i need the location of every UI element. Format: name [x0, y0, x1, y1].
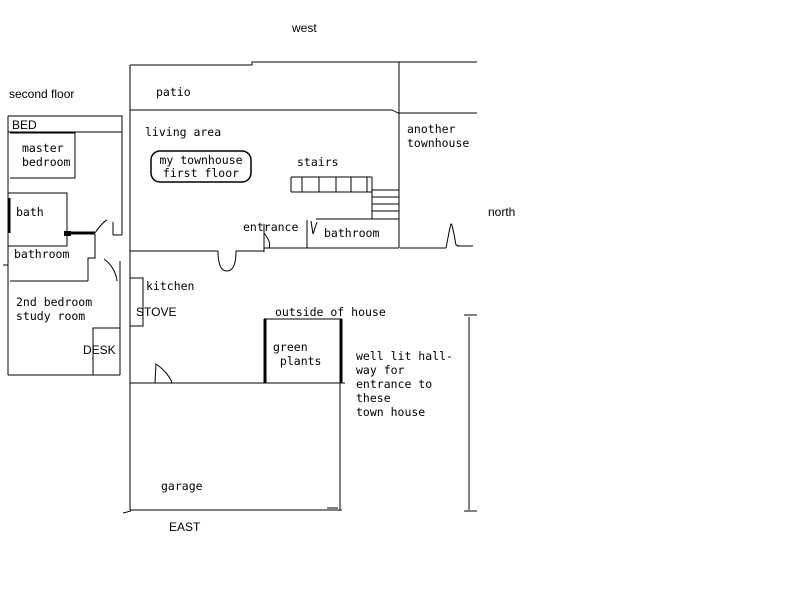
garage-corner-stroke: [123, 511, 131, 513]
kitchen-lower-door-swing: [155, 364, 172, 383]
floor-plan-canvas: west north EAST second floor BED master …: [0, 0, 800, 600]
neighbor-door-swing: [446, 224, 459, 248]
garage-walls: [123, 383, 345, 513]
stairs-upper-run: [291, 177, 372, 192]
stairs-label: stairs: [297, 155, 339, 169]
floor-plan-drawing: [0, 0, 800, 600]
entrance-door-swing: [264, 233, 270, 248]
bathroom-1f-label: bathroom: [324, 226, 379, 240]
east-label: EAST: [169, 520, 200, 534]
bath-label: bath: [16, 205, 44, 219]
west-label: west: [292, 21, 317, 35]
kitchen-door-swing: [218, 251, 236, 271]
second-bedroom-label: 2nd bedroom study room: [16, 295, 92, 323]
bathroom-2f-label: bathroom: [14, 247, 69, 261]
patio-label: patio: [156, 85, 191, 99]
hallway-line: [464, 315, 477, 511]
bathroom-divider-wall: [88, 234, 95, 281]
north-label: north: [488, 205, 515, 219]
door-hinge-mark: [64, 231, 71, 236]
another-townhouse-label: another townhouse: [407, 122, 469, 150]
outside-of-house-label: outside of house: [275, 305, 386, 319]
master-bedroom-label: master bedroom: [22, 141, 70, 169]
living-area-label: living area: [145, 125, 221, 139]
townhouse-bubble-label: my townhouse first floor: [151, 154, 251, 180]
door-swing-arc: [95, 220, 107, 233]
bathroom-door-mark: [311, 221, 317, 234]
desk-label: DESK: [83, 343, 116, 357]
hallway-note: well lit hall- way for entrance to these…: [356, 349, 453, 419]
top-wall: [130, 62, 477, 65]
kitchen-label: kitchen: [146, 279, 194, 293]
stairs-drawing: [291, 177, 399, 219]
door-jamb: [113, 222, 122, 235]
stairs-treads: [302, 177, 372, 192]
bath-box: [8, 193, 67, 246]
entrance-label: entrance: [243, 220, 298, 234]
stairs-lower-treads: [372, 197, 399, 219]
garage-label: garage: [161, 479, 203, 493]
patio-bottom-wall: [130, 110, 477, 113]
second-floor-title: second floor: [9, 87, 74, 101]
bed-label: BED: [12, 118, 37, 132]
kitchen-fixtures: [130, 278, 172, 383]
stove-label: STOVE: [136, 305, 176, 319]
green-plants-label: green plants: [273, 340, 321, 368]
door-swing-arc: [104, 259, 117, 281]
